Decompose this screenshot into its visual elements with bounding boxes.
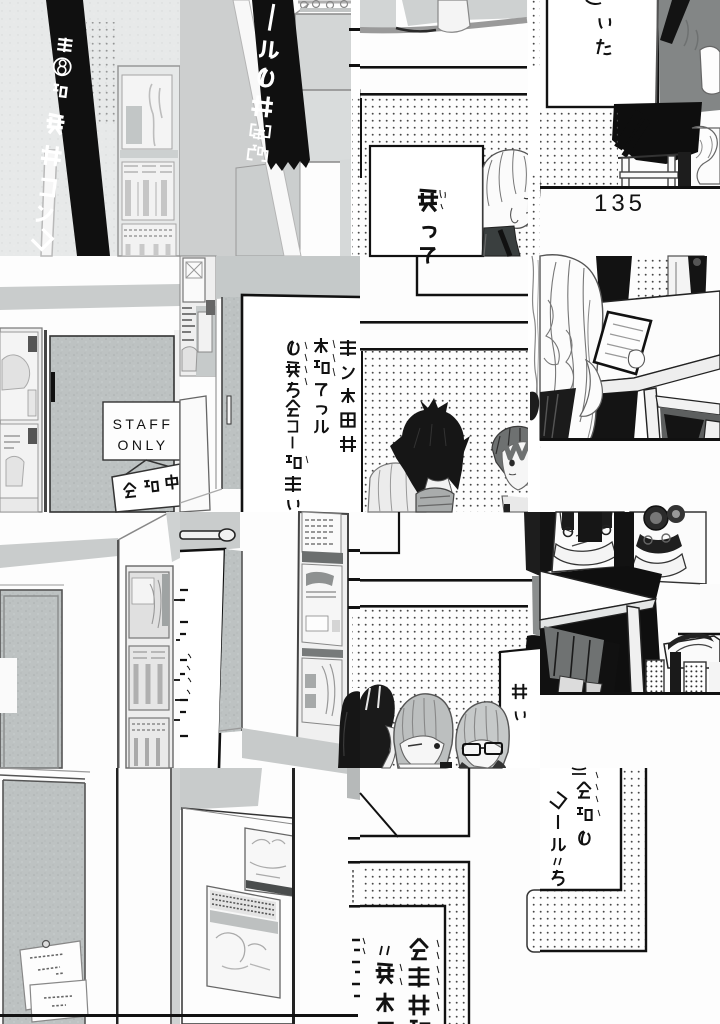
svg-text:ONLY: ONLY xyxy=(117,437,168,453)
svg-text:135: 135 xyxy=(594,190,646,217)
svg-text:STAFF: STAFF xyxy=(113,416,174,432)
